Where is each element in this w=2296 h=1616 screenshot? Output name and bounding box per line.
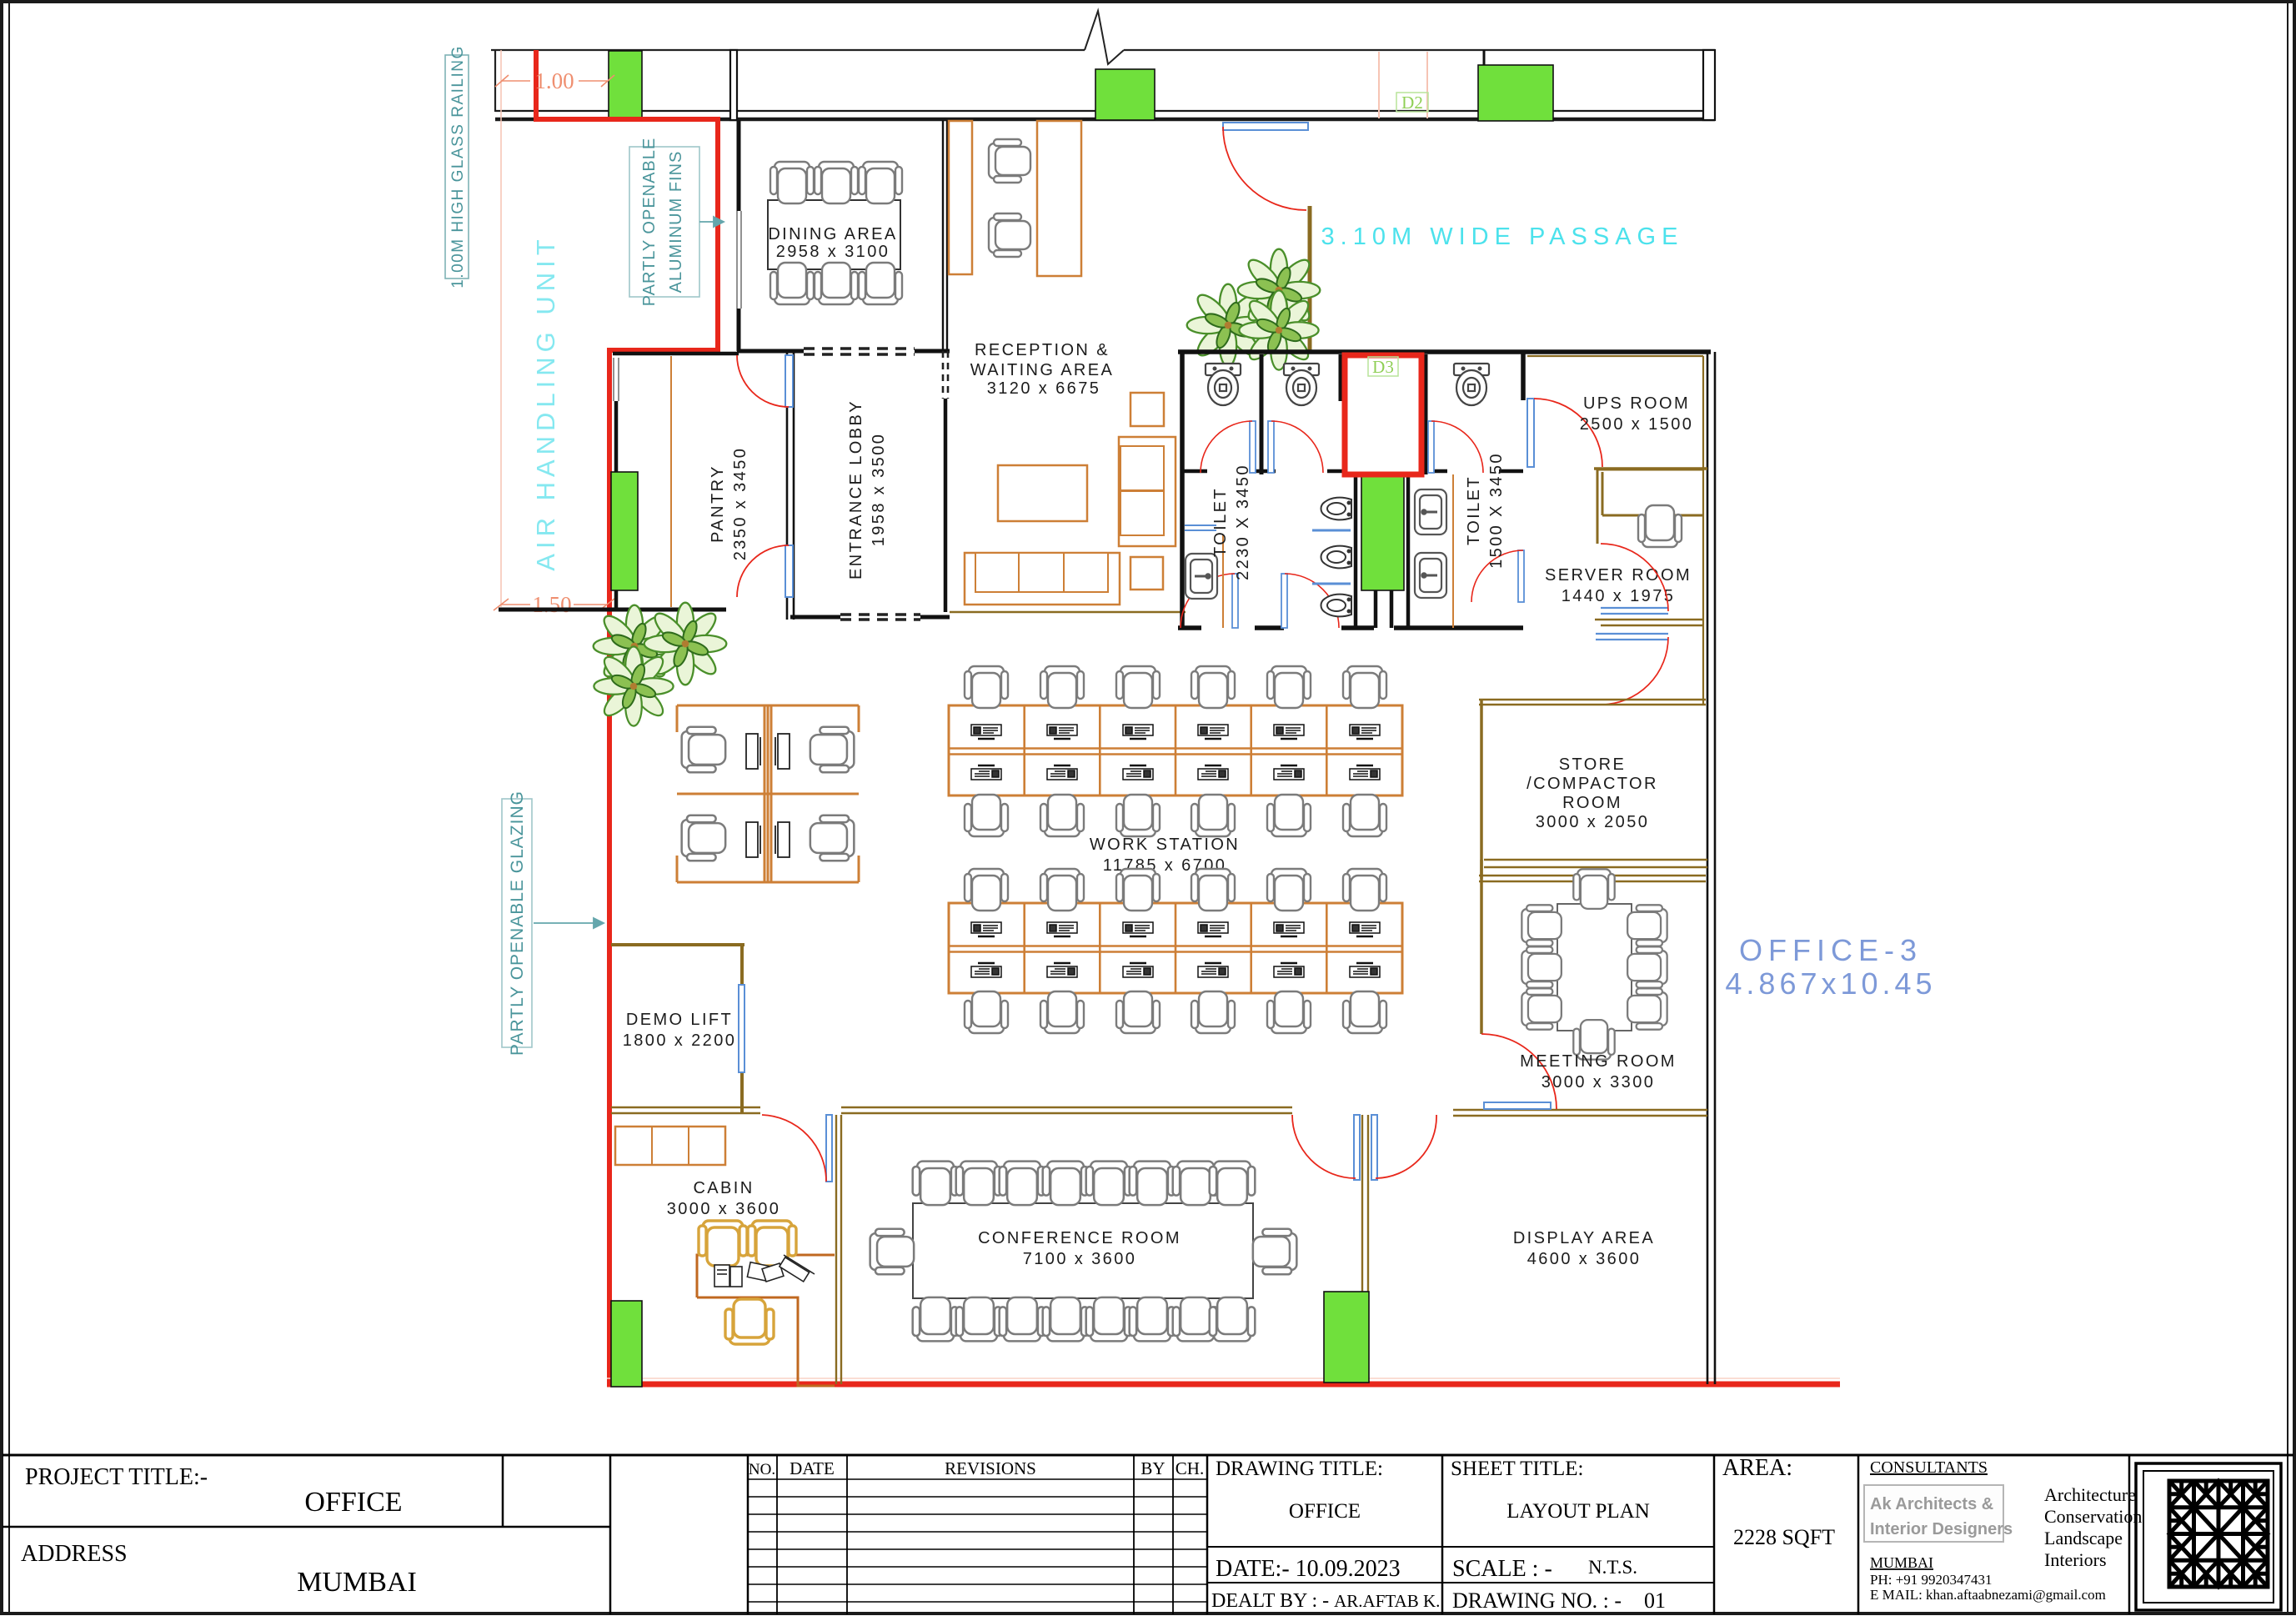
svg-text:CH.: CH. xyxy=(1176,1458,1204,1478)
svg-text:AREA:: AREA: xyxy=(1722,1455,1792,1481)
svg-text:1.50: 1.50 xyxy=(532,592,571,617)
svg-text:/COMPACTOR: /COMPACTOR xyxy=(1526,775,1658,793)
svg-text:Architecture: Architecture xyxy=(2044,1484,2136,1505)
svg-text:MUMBAI: MUMBAI xyxy=(297,1567,417,1598)
svg-text:D3: D3 xyxy=(1372,357,1394,377)
svg-text:CONSULTANTS: CONSULTANTS xyxy=(1870,1458,1988,1477)
svg-text:LAYOUT PLAN: LAYOUT PLAN xyxy=(1506,1500,1650,1523)
svg-text:WAITING AREA: WAITING AREA xyxy=(970,361,1115,379)
svg-text:1.00M HIGH GLASS RAILING: 1.00M HIGH GLASS RAILING xyxy=(449,45,467,289)
svg-text:ADDRESS: ADDRESS xyxy=(21,1541,128,1567)
svg-text:2350 x 3450: 2350 x 3450 xyxy=(731,447,749,561)
svg-text:PANTRY: PANTRY xyxy=(709,464,727,543)
svg-text:STORE: STORE xyxy=(1559,755,1627,774)
svg-text:CABIN: CABIN xyxy=(693,1179,754,1197)
svg-text:3000 x 3300: 3000 x 3300 xyxy=(1542,1073,1656,1092)
svg-text:Landscape: Landscape xyxy=(2044,1528,2123,1548)
svg-text:3000 x 2050: 3000 x 2050 xyxy=(1536,813,1650,831)
svg-text:D2: D2 xyxy=(1401,93,1423,113)
svg-text:NO.: NO. xyxy=(749,1461,775,1478)
svg-text:TOILET: TOILET xyxy=(1211,487,1230,557)
svg-text:OFFICE: OFFICE xyxy=(304,1487,402,1518)
svg-text:3.10M WIDE PASSAGE: 3.10M WIDE PASSAGE xyxy=(1321,223,1684,250)
svg-text:1.00: 1.00 xyxy=(534,68,574,93)
svg-text:E MAIL: khan.aftaabnezami@gmai: E MAIL: khan.aftaabnezami@gmail.com xyxy=(1870,1587,2106,1603)
svg-text:2958 x 3100: 2958 x 3100 xyxy=(776,243,890,261)
svg-text:WORK STATION: WORK STATION xyxy=(1090,836,1240,854)
svg-text:DRAWING TITLE:: DRAWING TITLE: xyxy=(1216,1458,1383,1480)
svg-text:CONFERENCE ROOM: CONFERENCE ROOM xyxy=(978,1229,1181,1247)
svg-text:REVISIONS: REVISIONS xyxy=(945,1458,1036,1478)
svg-text:DRAWING NO. : -: DRAWING NO. : - xyxy=(1452,1588,1622,1613)
svg-text:2228 SQFT: 2228 SQFT xyxy=(1733,1525,1835,1549)
svg-text:2500 x 1500: 2500 x 1500 xyxy=(1580,415,1694,434)
svg-text:Interior Designers: Interior Designers xyxy=(1870,1520,2013,1538)
svg-text:4600 x 3600: 4600 x 3600 xyxy=(1527,1250,1642,1268)
svg-text:DEALT BY : - AR.AFTAB K.: DEALT BY : - AR.AFTAB K. xyxy=(1211,1590,1440,1612)
svg-text:3000 x 3600: 3000 x 3600 xyxy=(667,1200,781,1218)
svg-text:2230 X 3450: 2230 X 3450 xyxy=(1234,464,1252,580)
svg-text:OFFICE-3: OFFICE-3 xyxy=(1739,933,1923,967)
svg-text:ALUMINUM FINS: ALUMINUM FINS xyxy=(667,151,685,294)
svg-text:BY: BY xyxy=(1140,1458,1165,1478)
svg-text:DATE:- 10.09.2023: DATE:- 10.09.2023 xyxy=(1216,1556,1401,1582)
svg-text:7100 x 3600: 7100 x 3600 xyxy=(1023,1250,1137,1268)
svg-text:ROOM: ROOM xyxy=(1562,794,1622,812)
svg-text:PROJECT TITLE:-: PROJECT TITLE:- xyxy=(25,1464,208,1490)
svg-text:AIR HANDLING UNIT: AIR HANDLING UNIT xyxy=(531,234,560,570)
svg-text:01: 01 xyxy=(1644,1588,1666,1613)
svg-text:1440 x 1975: 1440 x 1975 xyxy=(1562,587,1676,605)
svg-text:Interiors: Interiors xyxy=(2044,1549,2107,1570)
svg-text:1800 x 2200: 1800 x 2200 xyxy=(623,1031,737,1050)
svg-text:DEMO LIFT: DEMO LIFT xyxy=(626,1011,733,1029)
svg-text:SCALE : -: SCALE : - xyxy=(1452,1556,1552,1582)
svg-text:3120 x 6675: 3120 x 6675 xyxy=(987,379,1101,398)
svg-text:PARTLY OPENABLE GLAZING: PARTLY OPENABLE GLAZING xyxy=(508,790,527,1056)
svg-text:DISPLAY AREA: DISPLAY AREA xyxy=(1513,1229,1655,1247)
svg-text:RECEPTION &: RECEPTION & xyxy=(975,341,1110,359)
svg-text:1500 X 3450: 1500 X 3450 xyxy=(1487,452,1506,569)
svg-text:SHEET TITLE:: SHEET TITLE: xyxy=(1451,1458,1583,1480)
svg-text:1958 x 3500: 1958 x 3500 xyxy=(870,433,888,547)
svg-text:SERVER ROOM: SERVER ROOM xyxy=(1545,566,1692,585)
svg-text:Conservation: Conservation xyxy=(2044,1506,2142,1527)
svg-text:UPS ROOM: UPS ROOM xyxy=(1583,394,1690,413)
svg-text:DATE: DATE xyxy=(790,1458,835,1478)
svg-text:MEETING ROOM: MEETING ROOM xyxy=(1520,1052,1677,1071)
svg-text:PH: +91 9920347431: PH: +91 9920347431 xyxy=(1870,1572,1993,1588)
svg-text:ENTRANCE LOBBY: ENTRANCE LOBBY xyxy=(847,399,865,580)
svg-text:DINING AREA: DINING AREA xyxy=(768,225,897,243)
svg-text:4.867x10.45: 4.867x10.45 xyxy=(1725,966,1936,1001)
svg-text:N.T.S.: N.T.S. xyxy=(1588,1557,1637,1578)
svg-text:TOILET: TOILET xyxy=(1465,475,1483,545)
svg-text:Ak Architects &: Ak Architects & xyxy=(1870,1495,1993,1513)
svg-text:MUMBAI: MUMBAI xyxy=(1870,1554,1933,1571)
svg-text:OFFICE: OFFICE xyxy=(1289,1500,1361,1523)
svg-text:PARTLY OPENABLE: PARTLY OPENABLE xyxy=(640,138,659,307)
